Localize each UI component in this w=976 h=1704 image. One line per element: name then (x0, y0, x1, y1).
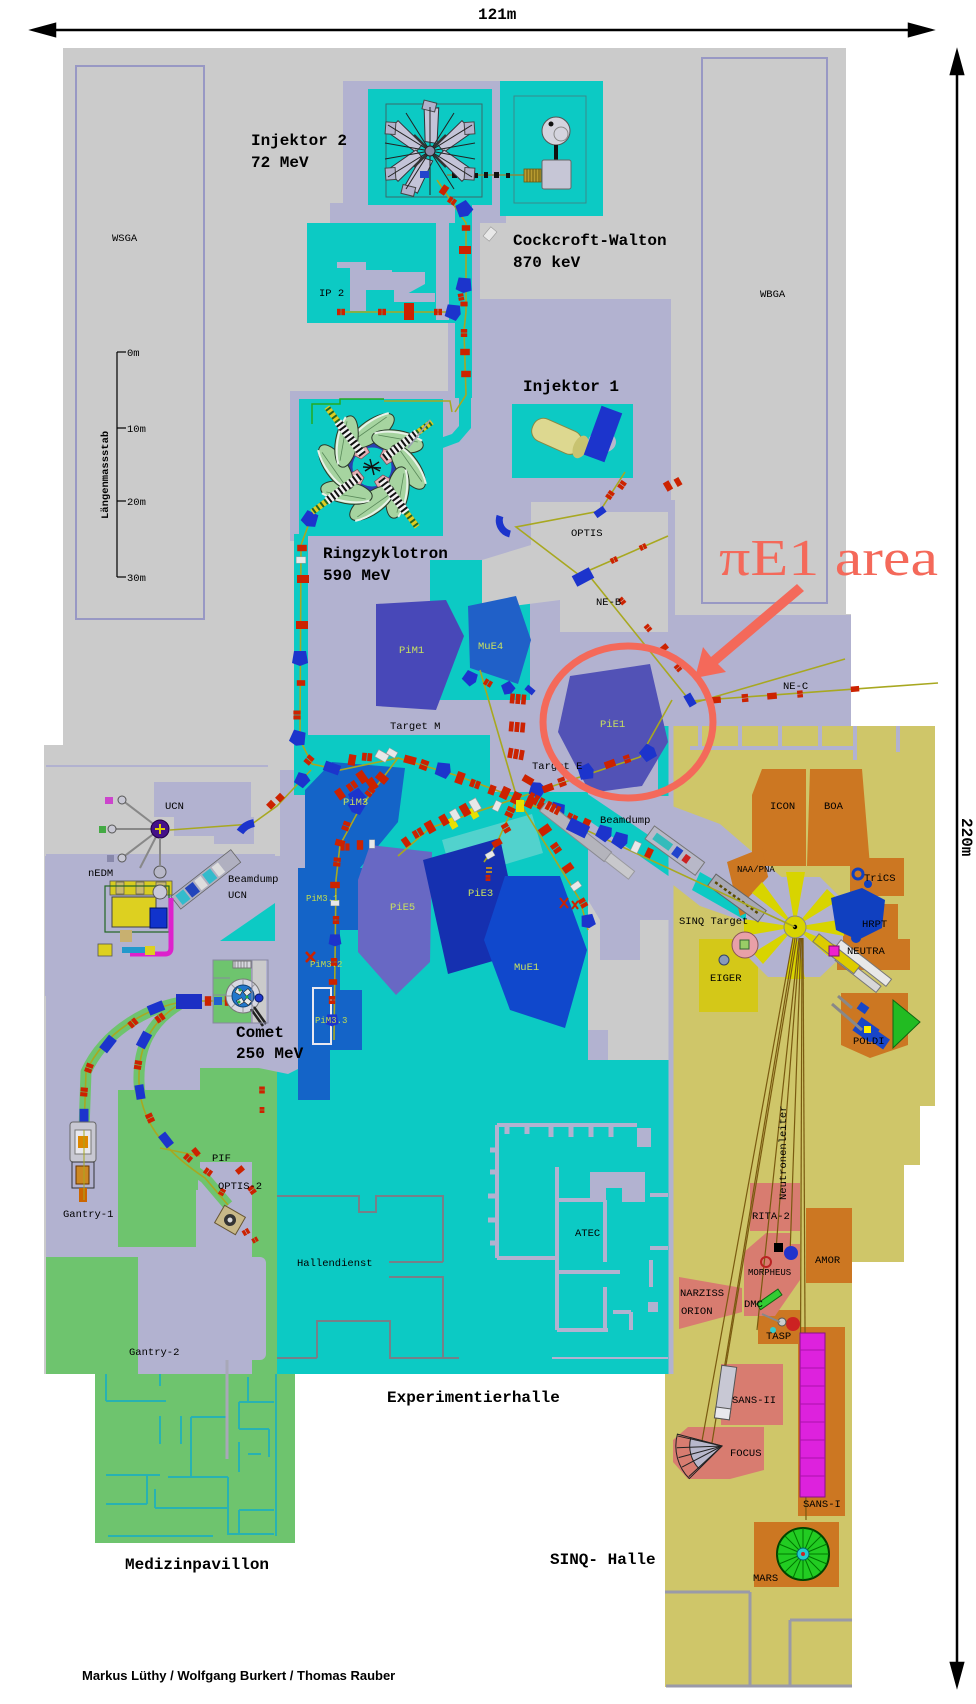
svg-text:Experimentierhalle: Experimentierhalle (387, 1389, 560, 1407)
svg-text:OPTIS-2: OPTIS-2 (218, 1181, 262, 1193)
svg-text:PiE3: PiE3 (468, 888, 493, 900)
svg-text:Comet: Comet (236, 1024, 284, 1042)
svg-text:Hallendienst: Hallendienst (297, 1258, 373, 1270)
svg-text:MARS: MARS (753, 1573, 778, 1585)
svg-text:IP 2: IP 2 (319, 288, 344, 300)
svg-text:SANS-II: SANS-II (732, 1395, 776, 1407)
svg-text:NAA/PNA: NAA/PNA (737, 865, 775, 875)
svg-text:NE-B: NE-B (596, 597, 621, 609)
svg-text:Injektor 1: Injektor 1 (523, 378, 619, 396)
svg-text:SINQ- Halle: SINQ- Halle (550, 1551, 656, 1569)
svg-text:PiE5: PiE5 (390, 902, 415, 914)
svg-text:10m: 10m (127, 424, 146, 436)
svg-text:SINQ Target: SINQ Target (679, 916, 748, 928)
svg-text:Cockcroft-Walton: Cockcroft-Walton (513, 232, 667, 250)
svg-text:PiM3.3: PiM3.3 (315, 1016, 347, 1026)
svg-text:WSGA: WSGA (112, 233, 138, 245)
svg-text:72 MeV: 72 MeV (251, 154, 309, 172)
svg-text:MuE4: MuE4 (478, 641, 503, 653)
svg-text:Injektor 2: Injektor 2 (251, 132, 347, 150)
svg-text:TriCS: TriCS (864, 873, 896, 885)
svg-text:ICON: ICON (770, 801, 795, 813)
svg-text:AMOR: AMOR (815, 1255, 841, 1267)
svg-text:UCN: UCN (165, 801, 184, 813)
svg-text:UCN: UCN (228, 890, 247, 902)
svg-text:πE1 area: πE1 area (719, 530, 938, 587)
svg-text:PiM3.2: PiM3.2 (310, 960, 342, 970)
svg-text:ORION: ORION (681, 1306, 713, 1318)
svg-text:Markus Lüthy / Wolfgang Burker: Markus Lüthy / Wolfgang Burkert / Thomas… (82, 1668, 395, 1683)
svg-text:Längenmassstab: Längenmassstab (100, 431, 112, 519)
svg-text:PiE1: PiE1 (600, 719, 625, 731)
svg-text:PiM3: PiM3 (343, 797, 368, 809)
svg-text:FOCUS: FOCUS (730, 1448, 762, 1460)
svg-text:250 MeV: 250 MeV (236, 1045, 304, 1063)
svg-text:MuE1: MuE1 (514, 962, 539, 974)
svg-text:NE-C: NE-C (783, 681, 808, 693)
svg-text:Beamdump: Beamdump (600, 815, 650, 827)
svg-text:OPTIS: OPTIS (571, 528, 603, 540)
svg-text:0m: 0m (127, 348, 140, 360)
svg-text:nEDM: nEDM (88, 868, 113, 880)
svg-text:Neutronenleiter: Neutronenleiter (778, 1105, 790, 1200)
svg-text:BOA: BOA (824, 801, 844, 813)
svg-text:TASP: TASP (766, 1331, 791, 1343)
svg-text:Gantry-2: Gantry-2 (129, 1347, 179, 1359)
svg-text:Target M: Target M (390, 721, 440, 733)
svg-text:PiM1: PiM1 (399, 645, 424, 657)
svg-text:SANS-I: SANS-I (803, 1499, 841, 1511)
svg-text:HRPT: HRPT (862, 919, 887, 931)
svg-text:20m: 20m (127, 497, 146, 509)
svg-text:POLDI: POLDI (853, 1036, 885, 1048)
svg-text:PiM3.1: PiM3.1 (306, 894, 338, 904)
svg-text:590 MeV: 590 MeV (323, 567, 391, 585)
svg-text:121m: 121m (478, 6, 517, 24)
svg-text:DMC: DMC (744, 1299, 763, 1311)
svg-text:Gantry-1: Gantry-1 (63, 1209, 113, 1221)
svg-text:PIF: PIF (212, 1153, 231, 1165)
svg-text:WBGA: WBGA (760, 289, 786, 301)
svg-text:EIGER: EIGER (710, 973, 742, 985)
svg-text:RITA-2: RITA-2 (752, 1211, 790, 1223)
svg-text:870 keV: 870 keV (513, 254, 581, 272)
svg-text:ATEC: ATEC (575, 1228, 600, 1240)
svg-text:Ringzyklotron: Ringzyklotron (323, 545, 448, 563)
svg-text:Beamdump: Beamdump (228, 874, 278, 886)
svg-text:Medizinpavillon: Medizinpavillon (125, 1556, 269, 1574)
svg-text:220m: 220m (957, 818, 975, 857)
svg-text:NARZISS: NARZISS (680, 1288, 724, 1300)
svg-text:30m: 30m (127, 573, 146, 585)
svg-text:NEUTRA: NEUTRA (847, 946, 886, 958)
svg-text:MORPHEUS: MORPHEUS (748, 1268, 791, 1278)
